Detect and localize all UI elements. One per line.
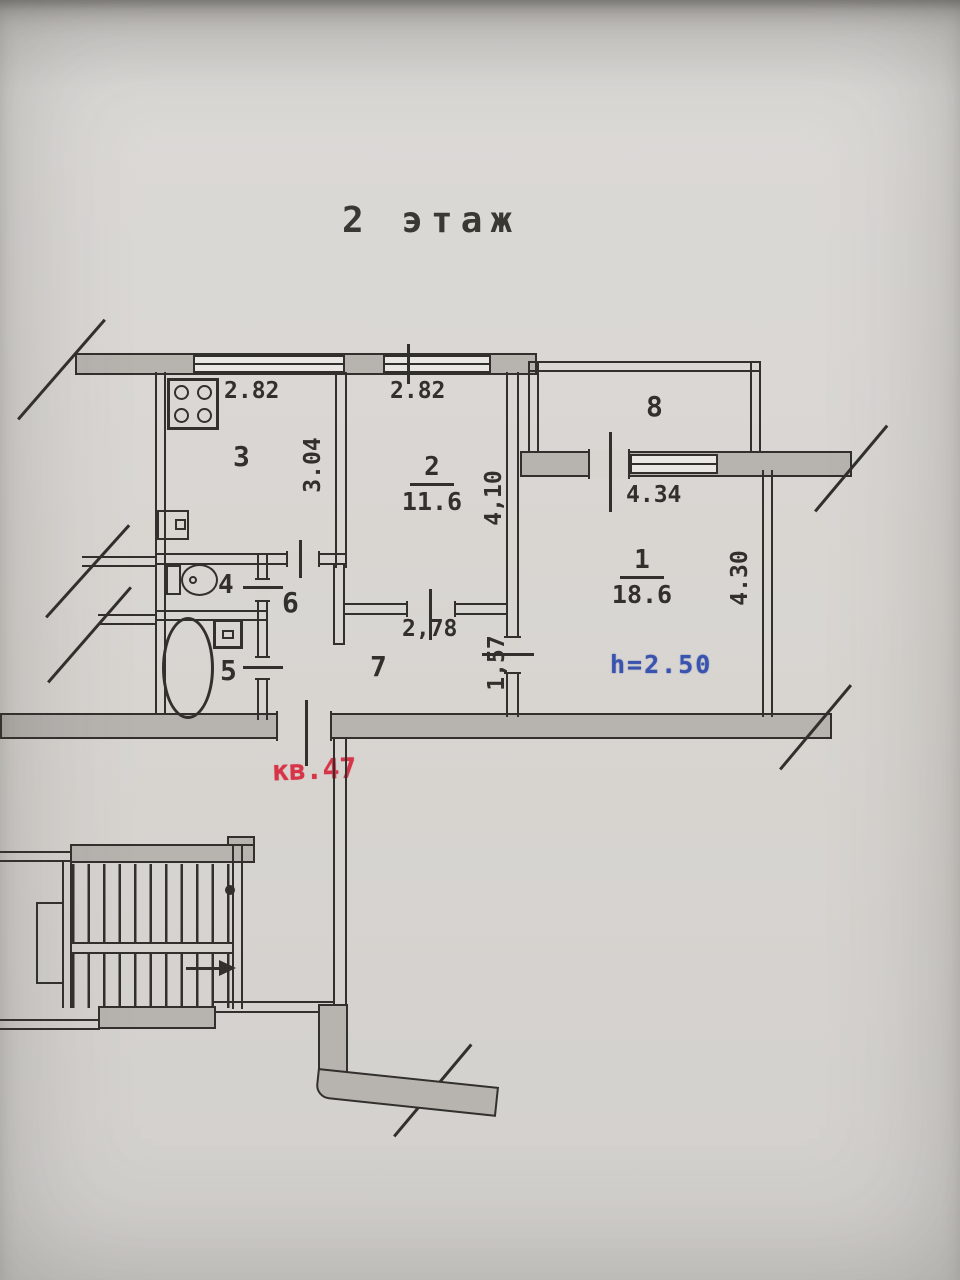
balcony-wall-left xyxy=(528,361,539,460)
corridor-wall xyxy=(333,739,347,1007)
dim-room1-depth: 4.30 xyxy=(727,543,753,613)
stair-wall-bottom xyxy=(98,1006,216,1029)
dim-room2-width: 2.82 xyxy=(390,378,445,404)
wall-room6-stub xyxy=(333,565,345,645)
toilet-icon xyxy=(166,560,220,600)
dimension-tick xyxy=(299,540,302,578)
stair-arrow-head xyxy=(219,960,236,976)
window-kitchen xyxy=(193,355,345,373)
dimension-tick xyxy=(243,666,283,669)
wall-room1-right xyxy=(762,470,773,717)
door-room4 xyxy=(255,578,270,602)
floor-plan-photo: 2 этаж xyxy=(0,0,960,1280)
bathtub-icon xyxy=(162,617,214,719)
kitchen-sink-icon xyxy=(157,510,189,540)
room-2-label: 2 11.6 xyxy=(396,452,468,516)
kitchen-sink-detail xyxy=(175,519,186,530)
stair-upper-flight xyxy=(72,864,232,944)
room-6-label: 6 xyxy=(282,586,299,619)
stove-icon xyxy=(167,378,219,430)
stair-wall-bottom-thin xyxy=(0,1019,100,1030)
wall-room3-room2 xyxy=(335,372,347,568)
stair-direction-arrow xyxy=(186,967,222,970)
stair-wall-top xyxy=(70,844,255,863)
room-7-label: 7 xyxy=(370,650,387,683)
stair-wall-right xyxy=(232,844,243,1009)
sink-detail xyxy=(222,630,234,639)
toilet-bowl xyxy=(181,564,218,596)
room-4-label: 4 xyxy=(218,570,234,600)
dim-kitchen-depth: 3.04 xyxy=(300,430,326,500)
room-number: 2 xyxy=(410,452,454,486)
dimension-tick xyxy=(609,432,612,512)
dimension-tick xyxy=(243,586,283,589)
stair-start-dot xyxy=(225,885,235,895)
bathtub-rim xyxy=(162,617,214,719)
stair-mid-landing xyxy=(72,942,233,954)
balcony-wall-right xyxy=(750,361,761,460)
dim-room1-width: 4.34 xyxy=(626,482,681,508)
balcony-wall-top xyxy=(528,361,760,372)
stair-wall-bottom-link xyxy=(214,1001,335,1013)
corridor-l-wall-horizontal xyxy=(315,1068,499,1117)
room-3-label: 3 xyxy=(233,440,250,473)
toilet-cistern xyxy=(166,565,181,595)
dim-hall7-width: 2,78 xyxy=(402,616,457,642)
burner xyxy=(197,385,212,400)
stair-landing-box xyxy=(36,902,64,984)
room-area: 11.6 xyxy=(396,487,468,516)
burner xyxy=(197,408,212,423)
window-room1 xyxy=(630,454,718,474)
burner xyxy=(174,408,189,423)
sink-icon xyxy=(213,619,243,649)
stair-wall-left-link xyxy=(0,851,74,862)
stair-lower-flight xyxy=(72,954,232,1008)
room-8-label: 8 xyxy=(646,390,663,423)
room-area: 18.6 xyxy=(606,580,678,609)
room-number: 1 xyxy=(620,545,664,579)
dim-room2-depth: 4,10 xyxy=(481,463,507,533)
floor-title: 2 этаж xyxy=(342,200,520,241)
wall-bottom xyxy=(0,713,832,739)
room-1-label: 1 18.6 xyxy=(606,545,678,609)
ceiling-height-stamp: h=2.50 xyxy=(610,650,712,679)
entrance-door-opening xyxy=(276,711,332,741)
room-5-label: 5 xyxy=(220,654,237,687)
burner xyxy=(174,385,189,400)
window-room2 xyxy=(383,355,491,373)
dim-kitchen-width: 2.82 xyxy=(224,378,279,404)
toilet-detail xyxy=(189,576,197,584)
dim-hall7-corridor: 1,57 xyxy=(484,628,510,698)
door-room3-room6 xyxy=(286,551,320,567)
